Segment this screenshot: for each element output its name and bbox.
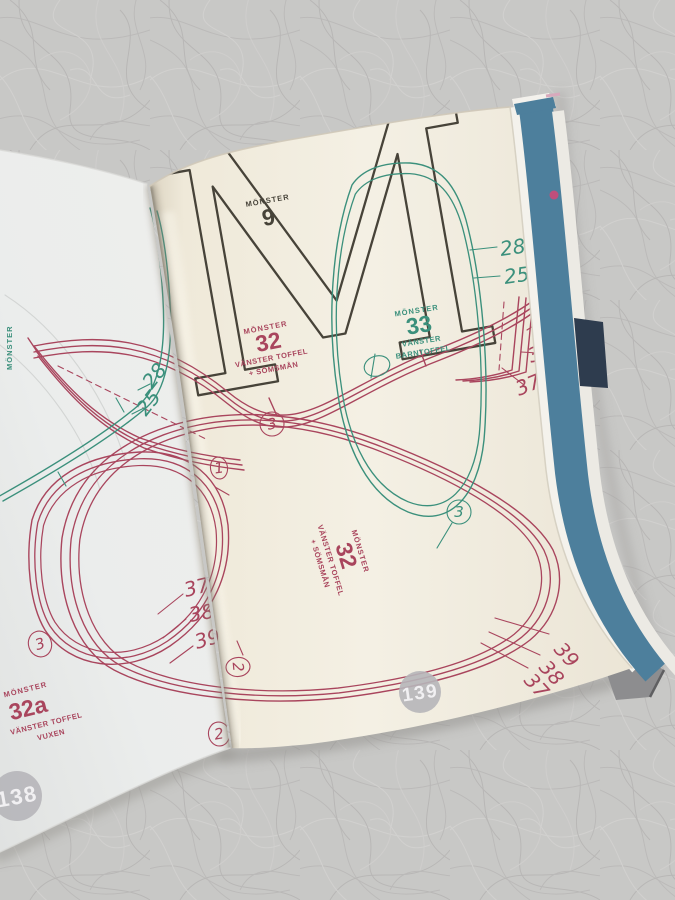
circled-digit-3-green: 3 — [454, 503, 464, 521]
book-photo: M MÖNSTER 9 — [0, 0, 675, 900]
pink-mark — [550, 191, 559, 200]
spine-monster-label: MÖNSTER — [5, 326, 14, 371]
circled-digit-2-rotated: 2 — [229, 661, 248, 672]
size-label-28-right: 28 — [498, 234, 527, 261]
pink-streak — [546, 94, 560, 96]
